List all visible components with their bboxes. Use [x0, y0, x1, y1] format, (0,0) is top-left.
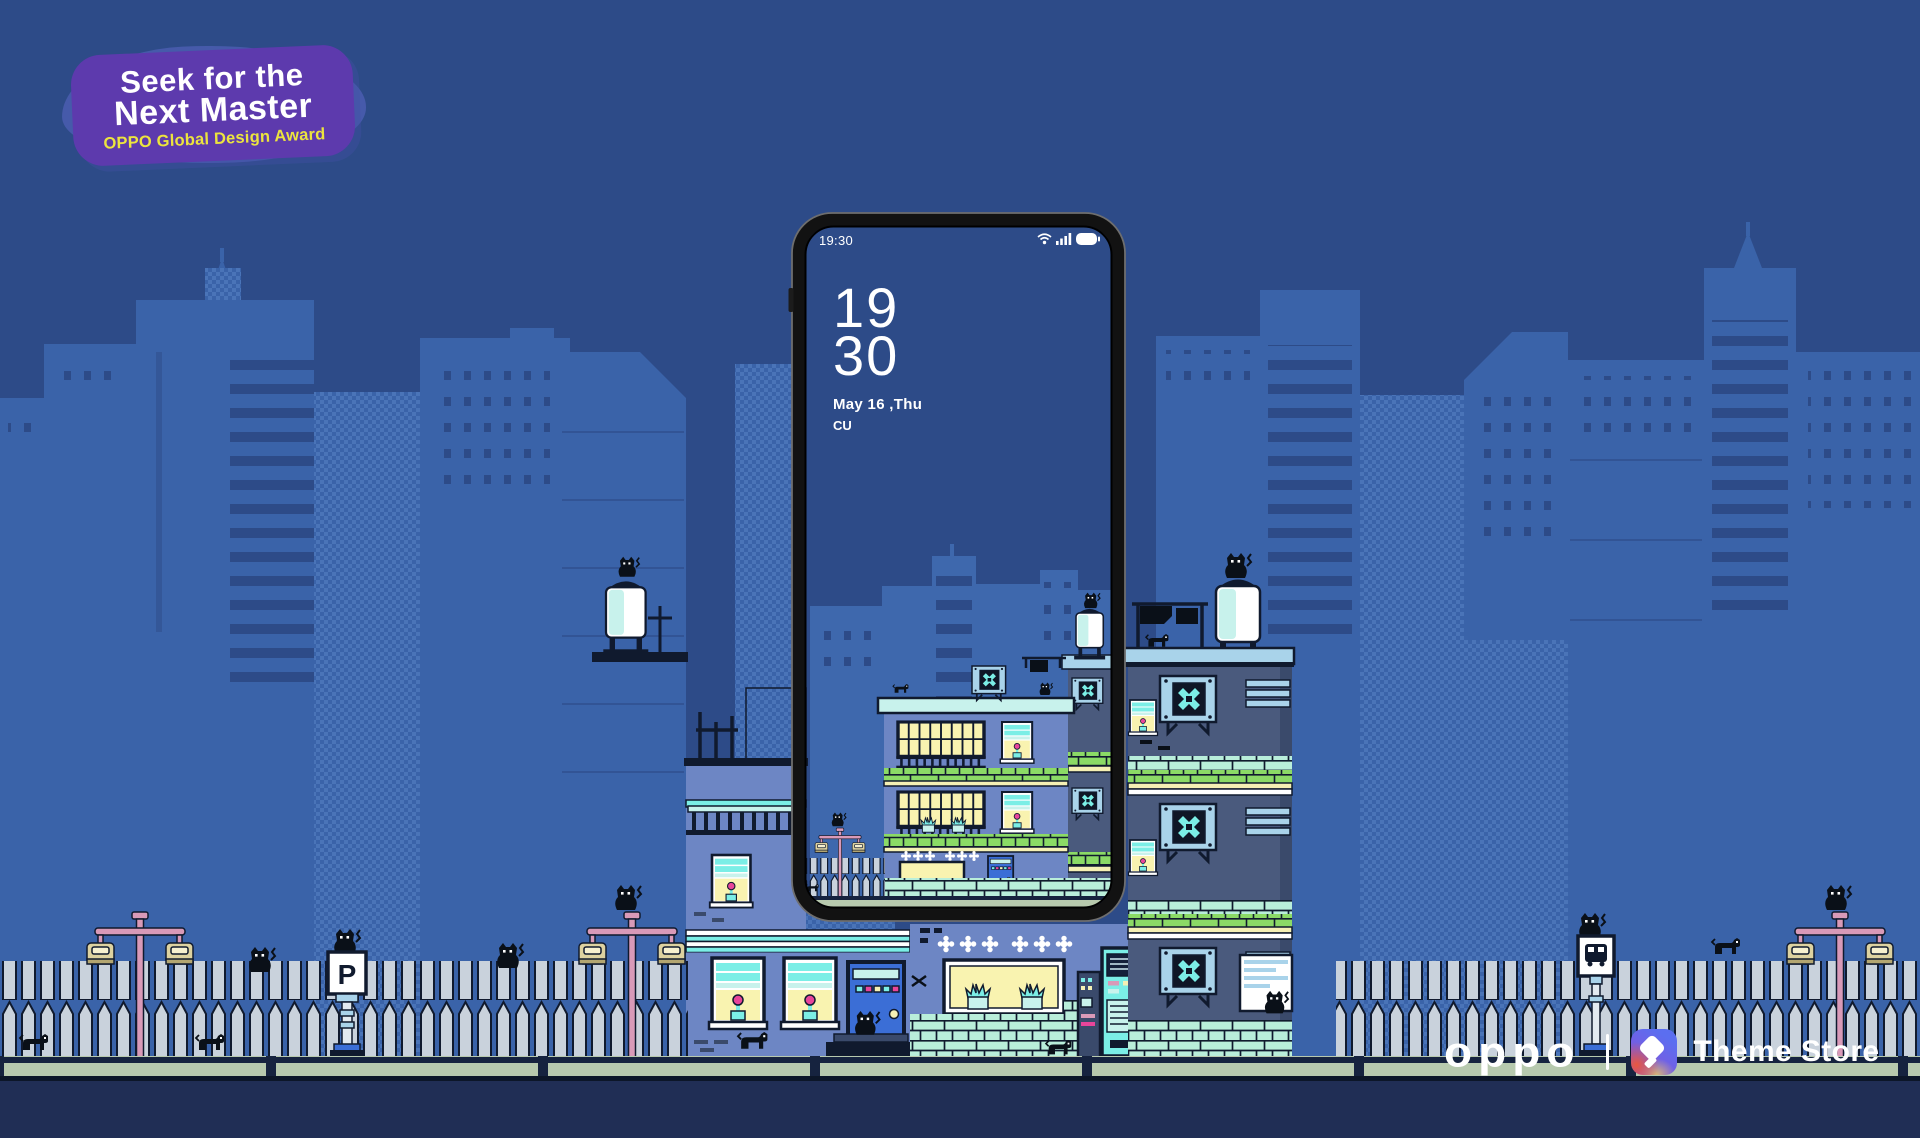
road [0, 1081, 1920, 1138]
clock-date: May 16 ,Thu [833, 396, 922, 413]
wifi-icon [1037, 233, 1052, 245]
clock-carrier: CU [833, 418, 922, 433]
oppo-logo: oppo [1444, 1031, 1580, 1073]
signal-bars-icon [1056, 233, 1072, 245]
city-scene: P [0, 0, 1920, 1138]
theme-store-label: Theme Store [1693, 1035, 1879, 1069]
building-center-ground [910, 924, 1140, 1058]
theme-store-app-icon [1631, 1029, 1677, 1075]
footer-divider [1606, 1034, 1609, 1070]
parking-sign-letter: P [338, 959, 357, 990]
clock-minute: 30 [833, 332, 922, 380]
status-icons [1037, 233, 1100, 245]
footer-brand: oppo Theme Store [1444, 1024, 1880, 1080]
status-time: 19:30 [819, 233, 853, 248]
phone-side-button [789, 288, 794, 312]
poster: P Seek for the Next Master OPPO Glob [0, 0, 1920, 1138]
event-badge: Seek for the Next Master OPPO Global Des… [70, 44, 357, 167]
lock-screen-clock: 19 30 May 16 ,Thu CU [833, 284, 922, 433]
badge-blob: Seek for the Next Master OPPO Global Des… [70, 44, 357, 167]
phone-status-bar: 19:30 [805, 231, 1112, 251]
battery-icon [1076, 233, 1100, 245]
